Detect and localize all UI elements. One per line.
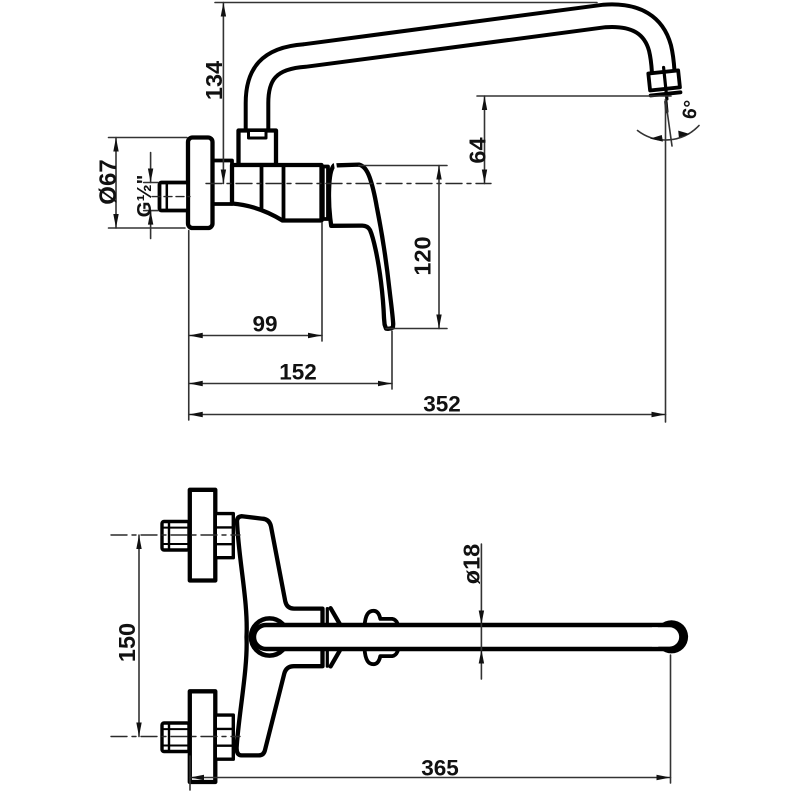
svg-text:Ø67: Ø67	[95, 159, 122, 204]
svg-text:6°: 6°	[678, 99, 702, 121]
svg-text:G½": G½"	[133, 175, 156, 218]
svg-text:ø18: ø18	[459, 544, 485, 585]
svg-text:352: 352	[423, 392, 461, 417]
svg-text:120: 120	[410, 236, 436, 275]
svg-text:152: 152	[279, 360, 317, 385]
svg-text:64: 64	[465, 137, 491, 163]
svg-text:99: 99	[252, 312, 277, 337]
svg-text:150: 150	[114, 623, 140, 662]
svg-text:365: 365	[421, 756, 459, 781]
svg-text:134: 134	[201, 61, 227, 100]
